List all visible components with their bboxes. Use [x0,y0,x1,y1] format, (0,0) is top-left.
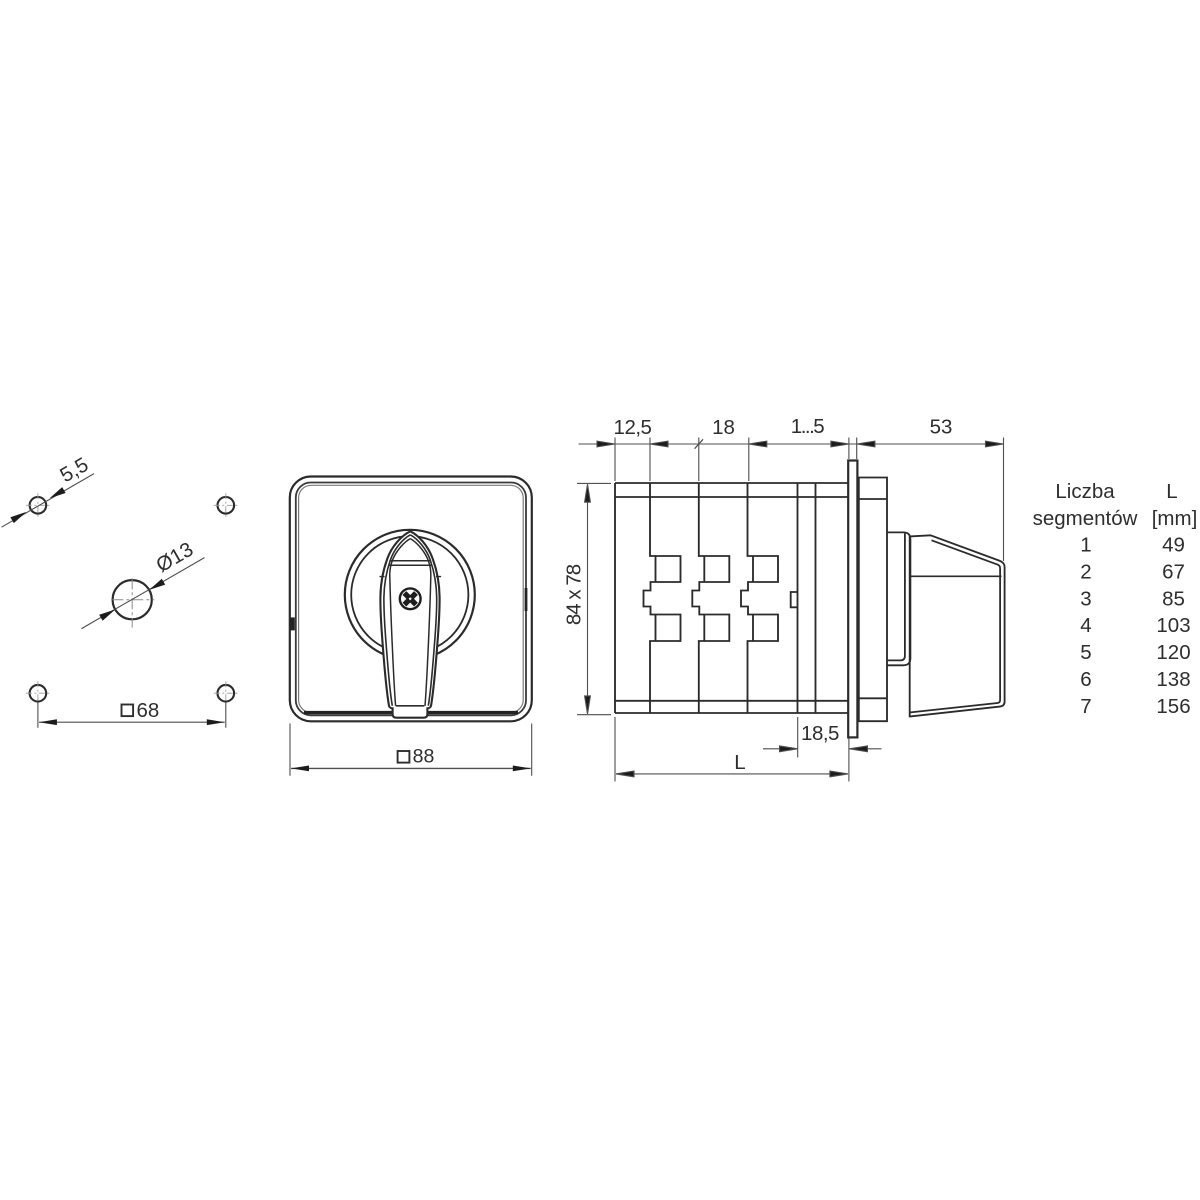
svg-text:7: 7 [1080,695,1091,718]
svg-text:6: 6 [1080,668,1091,691]
svg-text:L: L [734,751,745,774]
svg-text:18,5: 18,5 [801,722,839,745]
svg-text:segmentów: segmentów [1033,507,1138,530]
svg-text:12,5: 12,5 [614,416,652,439]
svg-text:49: 49 [1162,534,1185,557]
svg-text:L: L [1166,480,1177,503]
svg-text:85: 85 [1162,587,1185,610]
svg-text:53: 53 [930,416,953,439]
svg-text:67: 67 [1162,560,1185,583]
svg-text:5,5: 5,5 [56,453,92,487]
svg-text:120: 120 [1156,641,1190,664]
svg-text:3: 3 [1080,587,1091,610]
svg-text:Ø13: Ø13 [152,538,197,577]
svg-text:103: 103 [1156,614,1190,637]
svg-text:2: 2 [1080,560,1091,583]
svg-text:68: 68 [137,699,160,722]
svg-text:5: 5 [1080,641,1091,664]
svg-text:84 x 78: 84 x 78 [563,564,586,625]
svg-text:Liczba: Liczba [1055,480,1115,503]
svg-text:4: 4 [1080,614,1091,637]
svg-text:1...5: 1...5 [791,415,824,438]
svg-text:88: 88 [413,746,435,768]
svg-text:18: 18 [712,416,735,439]
svg-text:[mm]: [mm] [1152,507,1198,530]
svg-text:1: 1 [1080,534,1091,557]
svg-text:138: 138 [1156,668,1190,691]
svg-text:156: 156 [1156,695,1190,718]
